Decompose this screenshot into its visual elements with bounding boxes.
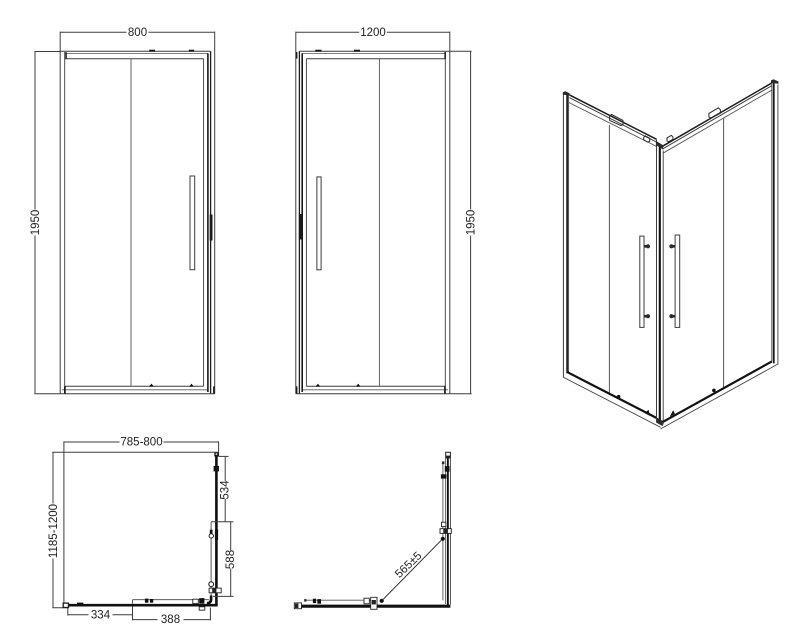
svg-text:1950: 1950 xyxy=(30,210,42,236)
svg-text:1200: 1200 xyxy=(360,27,386,39)
svg-text:534: 534 xyxy=(220,480,232,500)
svg-text:800: 800 xyxy=(128,27,147,39)
svg-text:588: 588 xyxy=(225,550,237,569)
svg-text:1185-1200: 1185-1200 xyxy=(48,504,60,558)
svg-text:1950: 1950 xyxy=(465,210,477,236)
svg-text:785-800: 785-800 xyxy=(120,437,162,449)
svg-text:388: 388 xyxy=(161,614,180,626)
svg-text:334: 334 xyxy=(91,609,111,621)
